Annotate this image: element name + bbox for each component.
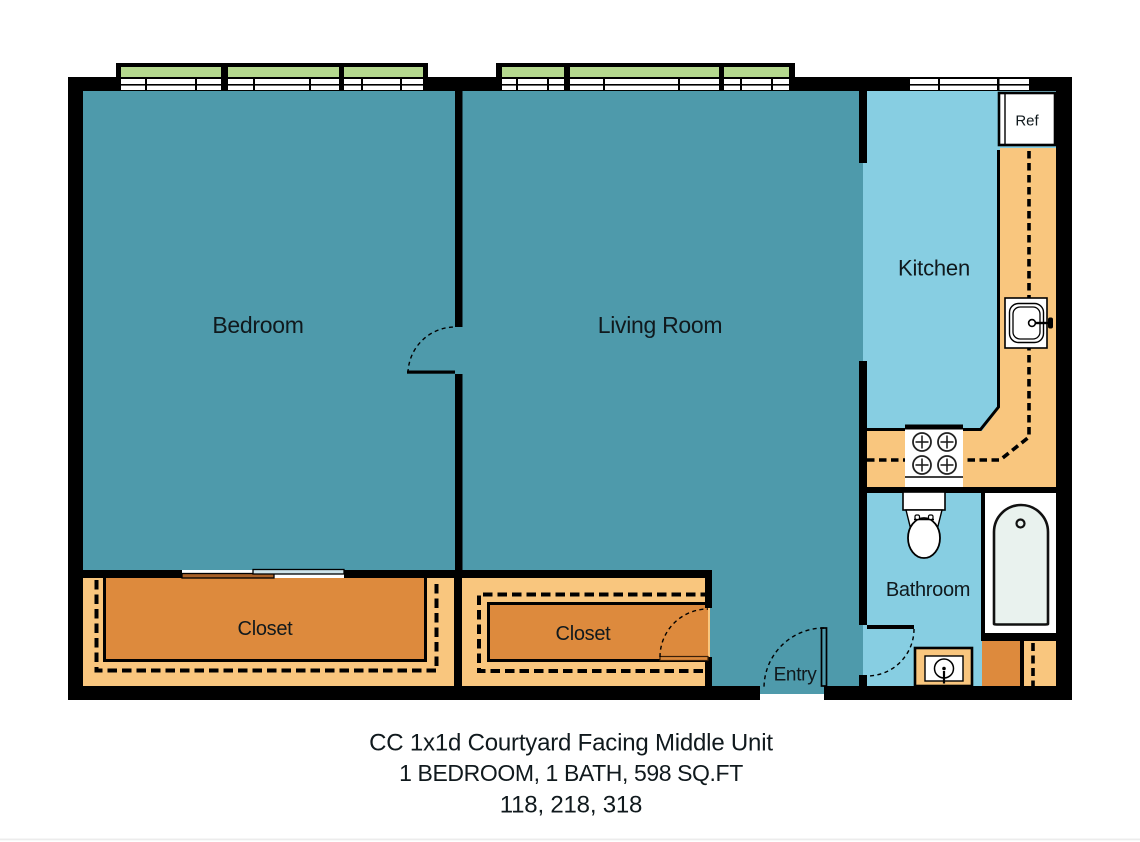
svg-text:Closet: Closet bbox=[238, 618, 294, 640]
svg-text:Kitchen: Kitchen bbox=[898, 256, 970, 281]
svg-text:Closet: Closet bbox=[556, 623, 612, 645]
svg-text:Bathroom: Bathroom bbox=[886, 579, 970, 601]
svg-text:Living Room: Living Room bbox=[598, 312, 723, 338]
svg-text:118, 218, 318: 118, 218, 318 bbox=[500, 791, 642, 818]
svg-text:Ref: Ref bbox=[1015, 112, 1039, 129]
svg-text:CC 1x1d Courtyard Facing Middl: CC 1x1d Courtyard Facing Middle Unit bbox=[369, 729, 773, 756]
svg-text:1 BEDROOM, 1 BATH, 598 SQ.FT: 1 BEDROOM, 1 BATH, 598 SQ.FT bbox=[399, 760, 743, 786]
svg-text:Entry: Entry bbox=[774, 665, 818, 686]
svg-text:Bedroom: Bedroom bbox=[212, 312, 303, 338]
